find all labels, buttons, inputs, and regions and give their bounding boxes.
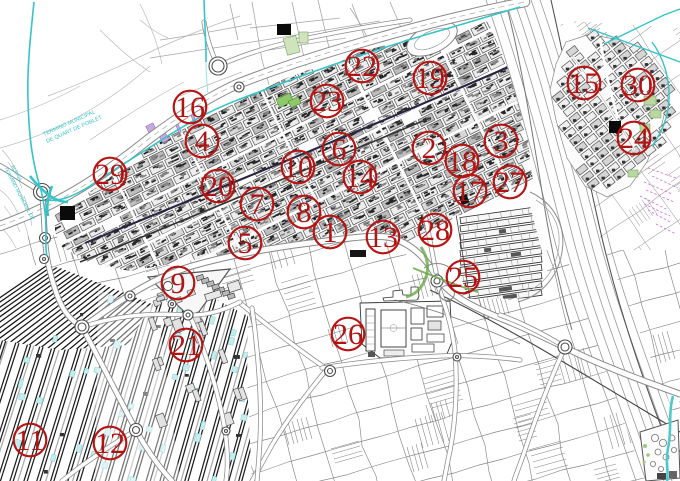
svg-text:12: 12 [95, 427, 125, 460]
svg-text:15: 15 [569, 67, 599, 100]
svg-text:3: 3 [494, 125, 509, 158]
svg-text:16: 16 [175, 91, 205, 124]
svg-text:29: 29 [95, 158, 125, 191]
svg-text:10: 10 [283, 151, 313, 184]
svg-text:23: 23 [312, 85, 342, 118]
svg-text:17: 17 [455, 175, 485, 208]
svg-text:7: 7 [250, 188, 265, 221]
svg-text:2: 2 [422, 132, 437, 165]
svg-text:27: 27 [495, 166, 525, 199]
svg-text:19: 19 [415, 62, 445, 95]
svg-text:21: 21 [171, 329, 201, 362]
svg-text:4: 4 [195, 125, 210, 158]
svg-text:25: 25 [448, 261, 478, 294]
svg-text:24: 24 [619, 122, 649, 155]
svg-text:30: 30 [623, 69, 653, 102]
svg-text:22: 22 [347, 50, 377, 83]
svg-text:18: 18 [447, 145, 477, 178]
svg-text:14: 14 [345, 161, 375, 194]
svg-text:20: 20 [203, 170, 233, 203]
svg-text:1: 1 [323, 216, 338, 249]
svg-text:9: 9 [171, 267, 186, 300]
svg-text:8: 8 [297, 196, 312, 229]
svg-text:11: 11 [16, 424, 45, 457]
svg-text:13: 13 [368, 221, 398, 254]
svg-text:5: 5 [238, 227, 253, 260]
svg-text:26: 26 [333, 318, 363, 351]
svg-text:28: 28 [420, 214, 450, 247]
